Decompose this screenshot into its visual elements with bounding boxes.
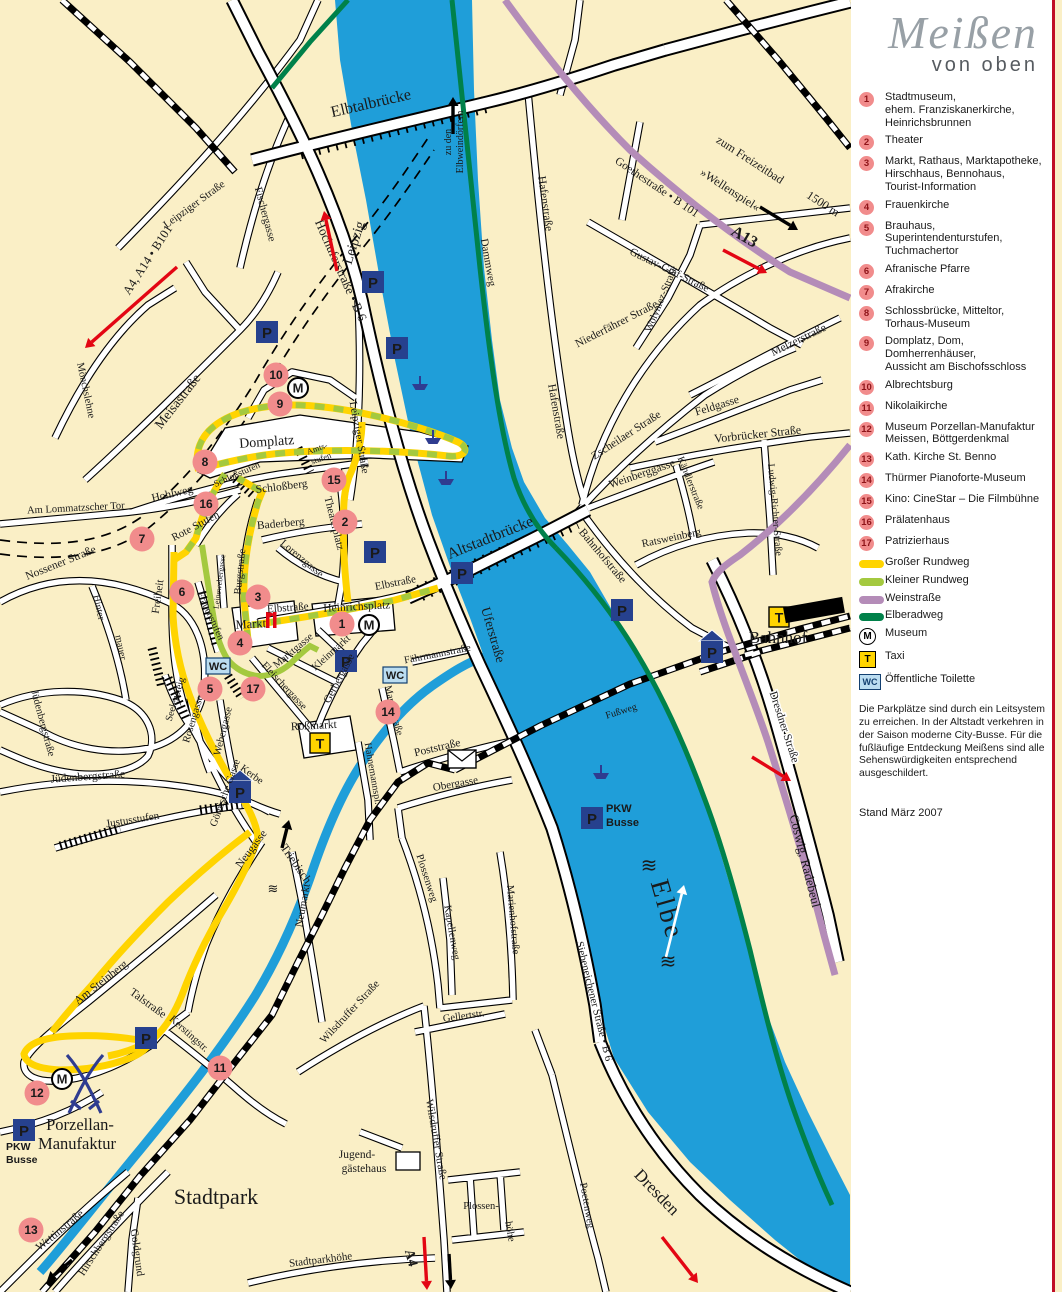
wc-icon: WC	[383, 667, 407, 683]
map-subtitle: von oben	[859, 54, 1038, 77]
legend-item-number: 11	[859, 401, 874, 416]
svg-text:P: P	[617, 603, 627, 620]
legend-symbol-label: Taxi	[885, 650, 905, 663]
legend-item-text: Afranische Pfarre	[885, 263, 970, 276]
legend-item-number: 5	[859, 221, 874, 236]
legend-panel: Meißen von oben 1Stadtmuseum, ehem. Fran…	[851, 0, 1054, 1292]
map-label-plossen-: Plossen-	[463, 1201, 499, 1212]
legend-item-4: 4Frauenkirche	[859, 199, 1048, 215]
poi-marker-9: 9	[268, 392, 293, 417]
legend-item-3: 3Markt, Rathaus, Marktapotheke, Hirschha…	[859, 155, 1048, 193]
post-office-icon	[448, 750, 476, 768]
legend-item-2: 2Theater	[859, 134, 1048, 150]
legend-item-1: 1Stadtmuseum, ehem. Franziskanerkirche, …	[859, 91, 1048, 129]
museum-icon: M	[288, 378, 308, 398]
legend-item-12: 12Museum Porzellan-Manufaktur Meissen, B…	[859, 421, 1048, 447]
poi-marker-12: 12	[25, 1081, 50, 1106]
legend-item-9: 9Domplatz, Dom, Domherrenhäuser, Aussich…	[859, 335, 1048, 373]
legend-item-text: Thürmer Pianoforte-Museum	[885, 472, 1026, 485]
river-waves-icon: ≋	[641, 855, 658, 877]
legend-item-13: 13Kath. Kirche St. Benno	[859, 451, 1048, 467]
map-label-manufaktur: Manufaktur	[38, 1134, 116, 1153]
svg-text:2: 2	[342, 515, 349, 529]
svg-text:10: 10	[269, 368, 283, 382]
map-label-gästehaus: gästehaus	[342, 1163, 387, 1175]
svg-text:9: 9	[277, 397, 284, 411]
legend-item-text: Museum Porzellan-Manufaktur Meissen, Böt…	[885, 421, 1035, 447]
legend-symbol-label: Öffentliche Toilette	[885, 673, 975, 686]
svg-text:5: 5	[207, 682, 214, 696]
svg-text:M: M	[57, 1072, 68, 1087]
legend-route-label: Großer Rundweg	[885, 556, 969, 569]
legend-item-number: 6	[859, 264, 874, 279]
svg-text:12: 12	[30, 1086, 44, 1100]
svg-text:11: 11	[214, 1061, 227, 1075]
legend-route-gro-er-rundweg: Großer Rundweg	[859, 556, 1048, 569]
legend-item-text: Nikolaikirche	[885, 400, 947, 413]
legend-route-label: Kleiner Rundweg	[885, 574, 969, 587]
svg-text:14: 14	[381, 705, 395, 719]
svg-text:8: 8	[202, 455, 209, 469]
map-label-elbweindörfern: Elbweindörfern	[455, 111, 466, 174]
legend-item-text: Stadtmuseum, ehem. Franziskanerkirche, H…	[885, 91, 1015, 129]
poi-marker-11: 11	[208, 1056, 233, 1081]
legend-item-text: Patrizierhaus	[885, 535, 949, 548]
parking-icon: P	[362, 271, 384, 293]
legend-item-number: 12	[859, 422, 874, 437]
poi-marker-2: 2	[333, 510, 358, 535]
legend-item-text: Theater	[885, 134, 923, 147]
map-title: Meißen	[859, 10, 1038, 56]
svg-text:1: 1	[339, 617, 346, 631]
legend-item-text: Frauenkirche	[885, 199, 949, 212]
poi-marker-8: 8	[193, 450, 218, 475]
legend-item-number: 9	[859, 336, 874, 351]
poi-marker-4: 4	[228, 631, 253, 656]
poi-marker-6: 6	[170, 580, 195, 605]
legend-symbol-taxi: TTaxi	[859, 650, 1048, 668]
parking-icon: P	[451, 562, 473, 584]
poi-marker-13: 13	[19, 1218, 44, 1243]
legend-item-7: 7Afrakirche	[859, 284, 1048, 300]
museum-icon: M	[359, 615, 379, 635]
map-label-jugend-: Jugend-	[339, 1149, 376, 1161]
svg-text:WC: WC	[209, 661, 227, 673]
legend-item-text: Prälatenhaus	[885, 514, 950, 527]
poi-marker-3: 3	[246, 585, 271, 610]
poi-marker-14: 14	[376, 700, 401, 725]
svg-text:≋: ≋	[268, 881, 279, 896]
legend-symbol-items: MMuseumTTaxiWCÖffentliche Toilette	[859, 627, 1048, 690]
poi-marker-16: 16	[194, 492, 219, 517]
legend-item-text: Domplatz, Dom, Domherrenhäuser, Aussicht…	[885, 335, 1026, 373]
parking-icon: P	[581, 807, 603, 829]
svg-text:3: 3	[255, 590, 262, 604]
taxi-icon: T	[859, 651, 876, 668]
svg-text:P: P	[141, 1031, 151, 1048]
wc-icon: WC	[859, 674, 881, 690]
poi-marker-7: 7	[130, 527, 155, 552]
legend-item-text: Afrakirche	[885, 284, 935, 297]
legend-item-17: 17Patrizierhaus	[859, 535, 1048, 551]
svg-text:16: 16	[199, 497, 213, 511]
map-label-stadtpark: Stadtpark	[174, 1184, 258, 1209]
legend-item-text: Brauhaus, Superintendenturstufen, Tuchma…	[885, 220, 1002, 258]
map-label-busse: Busse	[6, 1154, 38, 1166]
legend-item-14: 14Thürmer Pianoforte-Museum	[859, 472, 1048, 488]
svg-text:P: P	[392, 341, 402, 358]
legend-item-text: Kath. Kirche St. Benno	[885, 451, 996, 464]
legend-item-number: 13	[859, 452, 874, 467]
legend-item-text: Albrechtsburg	[885, 379, 953, 392]
legend-date: Stand März 2007	[859, 807, 1048, 819]
legend-item-number: 14	[859, 473, 874, 488]
legend-route-weinstra-e: Weinstraße	[859, 592, 1048, 605]
legend-item-number: 1	[859, 92, 874, 107]
river-waves-icon: ≋	[268, 881, 279, 896]
map-label-markt: Markt	[235, 616, 267, 632]
legend-route-kleiner-rundweg: Kleiner Rundweg	[859, 574, 1048, 587]
map-label-busse: Busse	[606, 817, 639, 829]
parking-icon: P	[135, 1027, 157, 1049]
map-label-pkw: PKW	[6, 1141, 31, 1153]
svg-text:P: P	[19, 1123, 29, 1140]
legend-route-label: Elberadweg	[885, 609, 943, 622]
parking-icon: P	[256, 321, 278, 343]
poi-marker-15: 15	[322, 468, 347, 493]
legend-item-8: 8Schlossbrücke, Mitteltor, Torhaus-Museu…	[859, 305, 1048, 331]
legend-red-line	[1052, 0, 1055, 1292]
svg-text:WC: WC	[386, 670, 404, 682]
svg-text:17: 17	[246, 682, 260, 696]
legend-item-number: 15	[859, 494, 874, 509]
poi-marker-5: 5	[198, 677, 223, 702]
legend-item-number: 16	[859, 515, 874, 530]
legend-symbol-label: Museum	[885, 627, 927, 640]
svg-text:P: P	[368, 275, 378, 292]
legend-note: Die Parkplätze sind durch ein Leitsystem…	[859, 704, 1046, 781]
svg-text:4: 4	[237, 636, 244, 650]
taxi-icon: T	[310, 733, 330, 753]
map-label-pkw: PKW	[606, 803, 632, 815]
svg-text:P: P	[235, 785, 245, 802]
museum-icon: M	[52, 1069, 72, 1089]
legend-item-number: 8	[859, 306, 874, 321]
parking-icon: P	[386, 337, 408, 359]
legend-item-10: 10Albrechtsburg	[859, 379, 1048, 395]
legend-route-label: Weinstraße	[885, 592, 941, 605]
poi-marker-10: 10	[264, 363, 289, 388]
svg-text:M: M	[293, 381, 304, 396]
poi-marker-17: 17	[241, 677, 266, 702]
svg-text:M: M	[364, 618, 375, 633]
svg-text:P: P	[587, 811, 597, 828]
legend-item-number: 2	[859, 135, 874, 150]
legend-symbol-museum: MMuseum	[859, 627, 1048, 645]
svg-text:13: 13	[24, 1223, 38, 1237]
legend-route-items: Großer RundwegKleiner RundwegWeinstraßeE…	[859, 556, 1048, 622]
legend-item-11: 11Nikolaikirche	[859, 400, 1048, 416]
legend-item-number: 3	[859, 156, 874, 171]
legend-title: Meißen von oben	[859, 10, 1048, 77]
legend-item-5: 5Brauhaus, Superintendenturstufen, Tuchm…	[859, 220, 1048, 258]
legend-item-6: 6Afranische Pfarre	[859, 263, 1048, 279]
legend-item-number: 4	[859, 200, 874, 215]
map-label-porzellan-: Porzellan-	[46, 1115, 114, 1134]
wc-icon: WC	[206, 658, 230, 674]
svg-text:6: 6	[179, 585, 186, 599]
svg-text:P: P	[262, 325, 272, 342]
legend-item-text: Markt, Rathaus, Marktapotheke, Hirschhau…	[885, 155, 1042, 193]
svg-text:7: 7	[139, 532, 146, 546]
svg-text:P: P	[707, 645, 717, 662]
parking-icon: P	[13, 1119, 35, 1141]
poi-marker-1: 1	[330, 612, 355, 637]
parking-icon: P	[611, 599, 633, 621]
svg-text:T: T	[775, 610, 784, 626]
legend-item-number: 7	[859, 285, 874, 300]
legend-item-16: 16Prälatenhaus	[859, 514, 1048, 530]
legend-route-elberadweg: Elberadweg	[859, 609, 1048, 622]
legend-item-number: 10	[859, 380, 874, 395]
map-page: PPPPPPPPPPPPTTWCWCMMM≋≋≋ ElbtalbrückeHoc…	[0, 0, 1062, 1292]
svg-text:15: 15	[327, 473, 341, 487]
route-color-swatch	[859, 613, 884, 621]
legend-item-15: 15Kino: CineStar – Die Filmbühne	[859, 493, 1048, 509]
legend-item-text: Kino: CineStar – Die Filmbühne	[885, 493, 1039, 506]
map-label-roßmarkt: Roßmarkt	[291, 719, 338, 733]
legend-item-text: Schlossbrücke, Mitteltor, Torhaus-Museum	[885, 305, 1004, 331]
svg-text:P: P	[457, 566, 467, 583]
svg-text:≋: ≋	[641, 855, 658, 877]
legend-item-number: 17	[859, 536, 874, 551]
svg-text:P: P	[370, 545, 380, 562]
svg-text:T: T	[316, 736, 325, 752]
route-color-swatch	[859, 596, 884, 604]
museum-icon: M	[859, 628, 876, 645]
map-label-bahnhof: Bahnhof	[749, 628, 808, 647]
parking-icon: P	[364, 541, 386, 563]
route-color-swatch	[859, 578, 884, 586]
route-color-swatch	[859, 560, 884, 568]
legend-numbered-items: 1Stadtmuseum, ehem. Franziskanerkirche, …	[859, 91, 1048, 551]
legend-symbol-wc: WCÖffentliche Toilette	[859, 673, 1048, 690]
